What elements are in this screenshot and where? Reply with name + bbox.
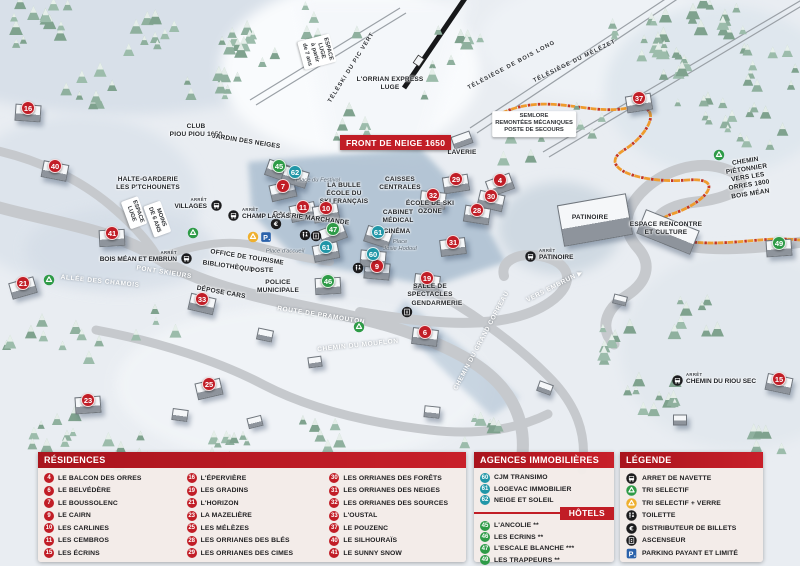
map-marker-25: 25 bbox=[202, 377, 216, 391]
bus-icon bbox=[626, 473, 638, 484]
legend-item: 33L'OUSTAL bbox=[323, 510, 466, 523]
legend-panel-agences: AGENCES IMMOBILIÈRES 60CJM TRANSIMO61LOG… bbox=[474, 452, 614, 562]
legend-item: 29LES ORRIANES DES CIMES bbox=[181, 547, 324, 560]
legend-item-label: LES ECRINS ** bbox=[494, 534, 543, 541]
map-label: CABINET MÉDICAL bbox=[382, 209, 413, 225]
map-label: CHEMIN DU MOUFLON bbox=[317, 338, 399, 355]
legend-item-label: PARKING PAYANT ET LIMITÉ bbox=[642, 550, 738, 557]
legend-item-label: LE BELVÉDÈRE bbox=[58, 487, 111, 494]
bus-stop-label: ARRÊTCHAMP LACAS bbox=[242, 208, 290, 220]
map-marker-61: 61 bbox=[319, 240, 333, 254]
map-marker-61: 61 bbox=[371, 225, 385, 239]
bus-stop-label: ARRÊTVILLAGES bbox=[174, 198, 207, 210]
legend-item-number: 19 bbox=[187, 486, 197, 496]
legend-item: ARRET DE NAVETTE bbox=[620, 472, 763, 485]
legend-panel-residences: RÉSIDENCES 4LE BALCON DES ORRES6LE BELVÉ… bbox=[38, 452, 466, 562]
bus-stop-label: ARRÊTBOIS MÉAN ET EMBRUN bbox=[100, 251, 177, 263]
legend-item-label: L'ÉPERVIÈRE bbox=[201, 475, 247, 482]
legend-item-label: TRI SELECTIF + VERRE bbox=[642, 500, 721, 507]
svg-text:P: P bbox=[629, 549, 634, 558]
map-marker-23: 23 bbox=[81, 393, 95, 407]
legend-item-label: ARRET DE NAVETTE bbox=[642, 475, 711, 482]
legend-item-label: LES ORRIANES DES BLÉS bbox=[201, 537, 290, 544]
map-label: CAISSES CENTRALES bbox=[379, 176, 421, 192]
bus-icon bbox=[228, 210, 239, 221]
legend-item: 23LA MAZELIÈRE bbox=[181, 510, 324, 523]
parking-icon: P bbox=[626, 548, 638, 559]
map-label: JARDIN DES NEIGES bbox=[211, 133, 281, 152]
legend-item: ASCENSEUR bbox=[620, 535, 763, 548]
legend-item-label: LE BOUSSOLENC bbox=[58, 500, 118, 507]
legend-item-label: TOILETTE bbox=[642, 512, 676, 519]
legend-item-label: LES MÉLÈZES bbox=[201, 525, 249, 532]
front-de-neige-banner: FRONT DE NEIGE 1650 bbox=[340, 135, 451, 150]
legend-item-label: LE POUZENC bbox=[343, 525, 388, 532]
legend-item-label: ASCENSEUR bbox=[642, 537, 686, 544]
legend-item-number: 28 bbox=[187, 536, 197, 546]
legend-item-number: 40 bbox=[329, 536, 339, 546]
map-marker-6: 6 bbox=[418, 325, 432, 339]
map-label: TÉLÉSIÈGE DE BOIS LONG bbox=[467, 40, 557, 93]
legend-item-label: LES TRAPPEURS ** bbox=[494, 557, 560, 564]
legend-item-label: L'HORIZON bbox=[201, 500, 239, 507]
legend-item-number: 7 bbox=[44, 498, 54, 508]
legend-item-label: LES ÉCRINS bbox=[58, 550, 100, 557]
legend-item-label: LE CAIRN bbox=[58, 512, 91, 519]
map-label: POSTE bbox=[250, 267, 273, 275]
map-marker-41: 41 bbox=[105, 226, 119, 240]
legend-item: TRI SELECTIF bbox=[620, 485, 763, 498]
hotels-divider: HÔTELS bbox=[474, 507, 614, 519]
legend-item-number: 25 bbox=[187, 523, 197, 533]
legend-item-number: 31 bbox=[329, 486, 339, 496]
legend-item-label: LA MAZELIÈRE bbox=[201, 512, 252, 519]
parking-icon: P bbox=[261, 232, 272, 243]
toilet-icon bbox=[300, 230, 311, 241]
elevator-icon bbox=[626, 535, 638, 546]
legend-item: 7LE BOUSSOLENC bbox=[38, 497, 181, 510]
toilet-icon bbox=[353, 263, 364, 274]
legend-item-label: LES ORRIANES DES FORÊTS bbox=[343, 475, 442, 482]
bus-stop-label: ARRÊTCHEMIN DU RIOU SEC bbox=[686, 373, 756, 385]
map-label: LAVERIE bbox=[447, 149, 476, 157]
map-marker-16: 16 bbox=[21, 101, 35, 115]
legend-item-label: DISTRIBUTEUR DE BILLETS bbox=[642, 525, 736, 532]
map-label: Place du Festival bbox=[296, 177, 340, 184]
residences-column: 30LES ORRIANES DES FORÊTS31LES ORRIANES … bbox=[323, 472, 466, 560]
legend-item-number: 4 bbox=[44, 473, 54, 483]
atm-icon: € bbox=[626, 523, 638, 534]
bus-icon bbox=[211, 200, 222, 211]
legend-item-number: 45 bbox=[480, 521, 490, 531]
legend-item-label: TRI SELECTIF bbox=[642, 487, 689, 494]
map-label: ROUTE DE PRAMOUTON bbox=[277, 305, 366, 327]
legend-item: 16L'ÉPERVIÈRE bbox=[181, 472, 324, 485]
legend-item-label: L'ESCALE BLANCHE *** bbox=[494, 545, 574, 552]
building bbox=[256, 327, 274, 342]
map-marker-40: 40 bbox=[48, 159, 62, 173]
legend-item: €DISTRIBUTEUR DE BILLETS bbox=[620, 522, 763, 535]
legend-item-number: 30 bbox=[329, 473, 339, 483]
map-marker-9: 9 bbox=[370, 259, 384, 273]
map-marker-7: 7 bbox=[276, 179, 290, 193]
legend-item-label: LES CARLINES bbox=[58, 525, 109, 532]
legend-item-number: 60 bbox=[480, 473, 490, 483]
map-marker-15: 15 bbox=[772, 372, 786, 386]
legend-item: 11LES CEMBROS bbox=[38, 535, 181, 548]
map-marker-10: 10 bbox=[319, 201, 333, 215]
map-label: MOINS DE 6 ANS bbox=[143, 201, 171, 238]
building bbox=[423, 405, 440, 419]
map-marker-32: 32 bbox=[426, 188, 440, 202]
map-label: TÉLÉSKI DU PIC VERT bbox=[327, 31, 376, 104]
toilet-icon bbox=[626, 510, 638, 521]
map-marker-46: 46 bbox=[321, 274, 335, 288]
legend-item-number: 32 bbox=[329, 498, 339, 508]
svg-text:P: P bbox=[263, 233, 268, 242]
hotels-line bbox=[474, 512, 560, 514]
legend-item: 46LES ECRINS ** bbox=[474, 532, 614, 543]
map-label: ESPACE RENCONTRE ET CULTURE bbox=[630, 221, 702, 237]
legend-item-number: 10 bbox=[44, 523, 54, 533]
legend-item-number: 23 bbox=[187, 511, 197, 521]
map-label: PATINOIRE bbox=[572, 214, 608, 222]
legend-item-label: L'ANCOLIE ** bbox=[494, 522, 539, 529]
legend-item: 60CJM TRANSIMO bbox=[474, 472, 614, 483]
bus-icon bbox=[525, 251, 536, 262]
legend-item: PPARKING PAYANT ET LIMITÉ bbox=[620, 547, 763, 560]
map-marker-28: 28 bbox=[470, 203, 484, 217]
legend-item-number: 33 bbox=[329, 511, 339, 521]
building bbox=[246, 415, 263, 429]
legend-item-number: 41 bbox=[329, 548, 339, 558]
map-label: PONT SKIEURS bbox=[136, 265, 193, 282]
map-marker-47: 47 bbox=[326, 222, 340, 236]
map-label: VERS EMBRUN ▶ bbox=[525, 269, 585, 305]
map-label: Place d'accueil bbox=[266, 248, 305, 255]
legend-item: 21L'HORIZON bbox=[181, 497, 324, 510]
legend-item: 28LES ORRIANES DES BLÉS bbox=[181, 535, 324, 548]
building bbox=[612, 293, 628, 306]
building bbox=[450, 130, 473, 149]
legend-item-label: LES CEMBROS bbox=[58, 537, 109, 544]
legend-item: 47L'ESCALE BLANCHE *** bbox=[474, 543, 614, 554]
legend-item: TOILETTE bbox=[620, 510, 763, 523]
map-label: CINÉMA bbox=[384, 228, 411, 236]
legend-item: 62NEIGE ET SOLEIL bbox=[474, 495, 614, 506]
recycle-green-icon bbox=[354, 322, 365, 333]
legend-item-number: 49 bbox=[480, 555, 490, 565]
map-marker-29: 29 bbox=[449, 172, 463, 186]
map-label: L'ORRIAN EXPRESS LUGE bbox=[357, 76, 424, 92]
legend-item-number: 61 bbox=[480, 484, 490, 494]
legend-item-label: LES GRADINS bbox=[201, 487, 249, 494]
legend-item: 49LES TRAPPEURS ** bbox=[474, 554, 614, 565]
legend-item-label: CJM TRANSIMO bbox=[494, 474, 548, 481]
building bbox=[171, 408, 189, 422]
map-label: ESPACE LUGE bbox=[120, 196, 147, 230]
recycle-green-icon bbox=[44, 275, 55, 286]
map-marker-21: 21 bbox=[16, 276, 30, 290]
legend-item: 61LOGEVAC IMMOBILIER bbox=[474, 483, 614, 494]
legend-item: 31LES ORRIANES DES NEIGES bbox=[323, 485, 466, 498]
map-label: POLICE MUNICIPALE bbox=[257, 279, 299, 295]
building bbox=[307, 356, 322, 369]
legend-item-label: LES ORRIANES DES SOURCES bbox=[343, 500, 448, 507]
elevator-icon bbox=[311, 231, 322, 242]
legend-item: 4LE BALCON DES ORRES bbox=[38, 472, 181, 485]
bus-icon bbox=[672, 375, 683, 386]
legend-item: 10LES CARLINES bbox=[38, 522, 181, 535]
elevator-icon bbox=[402, 307, 413, 318]
legend-item: 9LE CAIRN bbox=[38, 510, 181, 523]
legend-item-number: 29 bbox=[187, 548, 197, 558]
map-marker-49: 49 bbox=[772, 236, 786, 250]
map-label: Place Josie Hodoul bbox=[383, 239, 417, 253]
legend-item-number: 47 bbox=[480, 544, 490, 554]
legende-title: LÉGENDE bbox=[620, 452, 763, 468]
map-label: CHEMIN PIÉTONNIER VERS LES ORRES 1800 BO… bbox=[719, 154, 777, 202]
bus-icon bbox=[181, 253, 192, 264]
legend-item-label: LE SILHOURAÏS bbox=[343, 537, 397, 544]
legend-item-number: 15 bbox=[44, 548, 54, 558]
map-marker-19: 19 bbox=[420, 271, 434, 285]
residences-column: 4LE BALCON DES ORRES6LE BELVÉDÈRE7LE BOU… bbox=[38, 472, 181, 560]
map-marker-33: 33 bbox=[195, 292, 209, 306]
recycle-green-icon bbox=[188, 228, 199, 239]
legend-item-number: 21 bbox=[187, 498, 197, 508]
legend-item: 30LES ORRIANES DES FORÊTS bbox=[323, 472, 466, 485]
legend-item-number: 16 bbox=[187, 473, 197, 483]
map-label: ALLÉE DES CHAMOIS bbox=[60, 274, 140, 290]
legend-item: 40LE SILHOURAÏS bbox=[323, 535, 466, 548]
legend-item-label: LES ORRIANES DES NEIGES bbox=[343, 487, 440, 494]
map-label: HALTE-GARDERIE LES P'TCHOUNETS bbox=[116, 176, 180, 192]
legend-item-number: 46 bbox=[480, 532, 490, 542]
legend-item: 25LES MÉLÈZES bbox=[181, 522, 324, 535]
recycle-green-icon bbox=[714, 150, 725, 161]
legend-item-label: L'OUSTAL bbox=[343, 512, 377, 519]
recycle-yellow-icon bbox=[626, 498, 638, 509]
map-label: SEMLORE REMONTÉES MÉCANIQUES POSTE DE SE… bbox=[492, 111, 576, 137]
bus-stop-label: ARRÊTPATINOIRE bbox=[539, 249, 573, 261]
legend-item: 19LES GRADINS bbox=[181, 485, 324, 498]
legend-item-label: NEIGE ET SOLEIL bbox=[494, 497, 554, 504]
legend-item: 6LE BELVÉDÈRE bbox=[38, 485, 181, 498]
legend-item-label: LE BALCON DES ORRES bbox=[58, 475, 141, 482]
map-label: GENDARMERIE bbox=[412, 300, 463, 308]
map-marker-62: 62 bbox=[288, 165, 302, 179]
map-marker-37: 37 bbox=[632, 91, 646, 105]
ski-resort-map: ESPACE LUGE à partir de 7 ansTÉLÉSKI DU … bbox=[0, 0, 800, 566]
building bbox=[673, 415, 687, 426]
legend-item-label: LOGEVAC IMMOBILIER bbox=[494, 486, 572, 493]
legend-item-label: LES ORRIANES DES CIMES bbox=[201, 550, 293, 557]
svg-text:€: € bbox=[628, 525, 633, 532]
atm-icon: € bbox=[271, 219, 282, 230]
agences-title: AGENCES IMMOBILIÈRES bbox=[474, 452, 614, 468]
legend-item: 45L'ANCOLIE ** bbox=[474, 520, 614, 531]
legend-item-number: 6 bbox=[44, 486, 54, 496]
legend-item: 41LE SUNNY SNOW bbox=[323, 547, 466, 560]
hotels-title: HÔTELS bbox=[560, 507, 614, 520]
building bbox=[536, 380, 554, 395]
map-marker-11: 11 bbox=[296, 200, 310, 214]
residences-column: 16L'ÉPERVIÈRE19LES GRADINS21L'HORIZON23L… bbox=[181, 472, 324, 560]
map-marker-4: 4 bbox=[493, 173, 507, 187]
legend-item: 32LES ORRIANES DES SOURCES bbox=[323, 497, 466, 510]
map-marker-60: 60 bbox=[366, 247, 380, 261]
map-marker-45: 45 bbox=[272, 159, 286, 173]
map-label: SALLE DE SPECTACLES bbox=[407, 283, 452, 299]
legend-item-number: 37 bbox=[329, 523, 339, 533]
legend-item-number: 11 bbox=[44, 536, 54, 546]
legend-item-number: 62 bbox=[480, 495, 490, 505]
legend-item: TRI SELECTIF + VERRE bbox=[620, 497, 763, 510]
legend-item-number: 9 bbox=[44, 511, 54, 521]
legend-item: 15LES ÉCRINS bbox=[38, 547, 181, 560]
legend-item-label: LE SUNNY SNOW bbox=[343, 550, 402, 557]
map-label: ESPACE LUGE à partir de 7 ans bbox=[297, 34, 336, 71]
legend-item: 37LE POUZENC bbox=[323, 522, 466, 535]
recycle-green-icon bbox=[626, 485, 638, 496]
legend-panel-legende: LÉGENDE ARRET DE NAVETTETRI SELECTIFTRI … bbox=[620, 452, 763, 562]
svg-text:€: € bbox=[273, 221, 278, 228]
recycle-yellow-icon bbox=[248, 232, 259, 243]
map-marker-31: 31 bbox=[446, 235, 460, 249]
residences-title: RÉSIDENCES bbox=[38, 452, 466, 468]
map-marker-30: 30 bbox=[484, 189, 498, 203]
